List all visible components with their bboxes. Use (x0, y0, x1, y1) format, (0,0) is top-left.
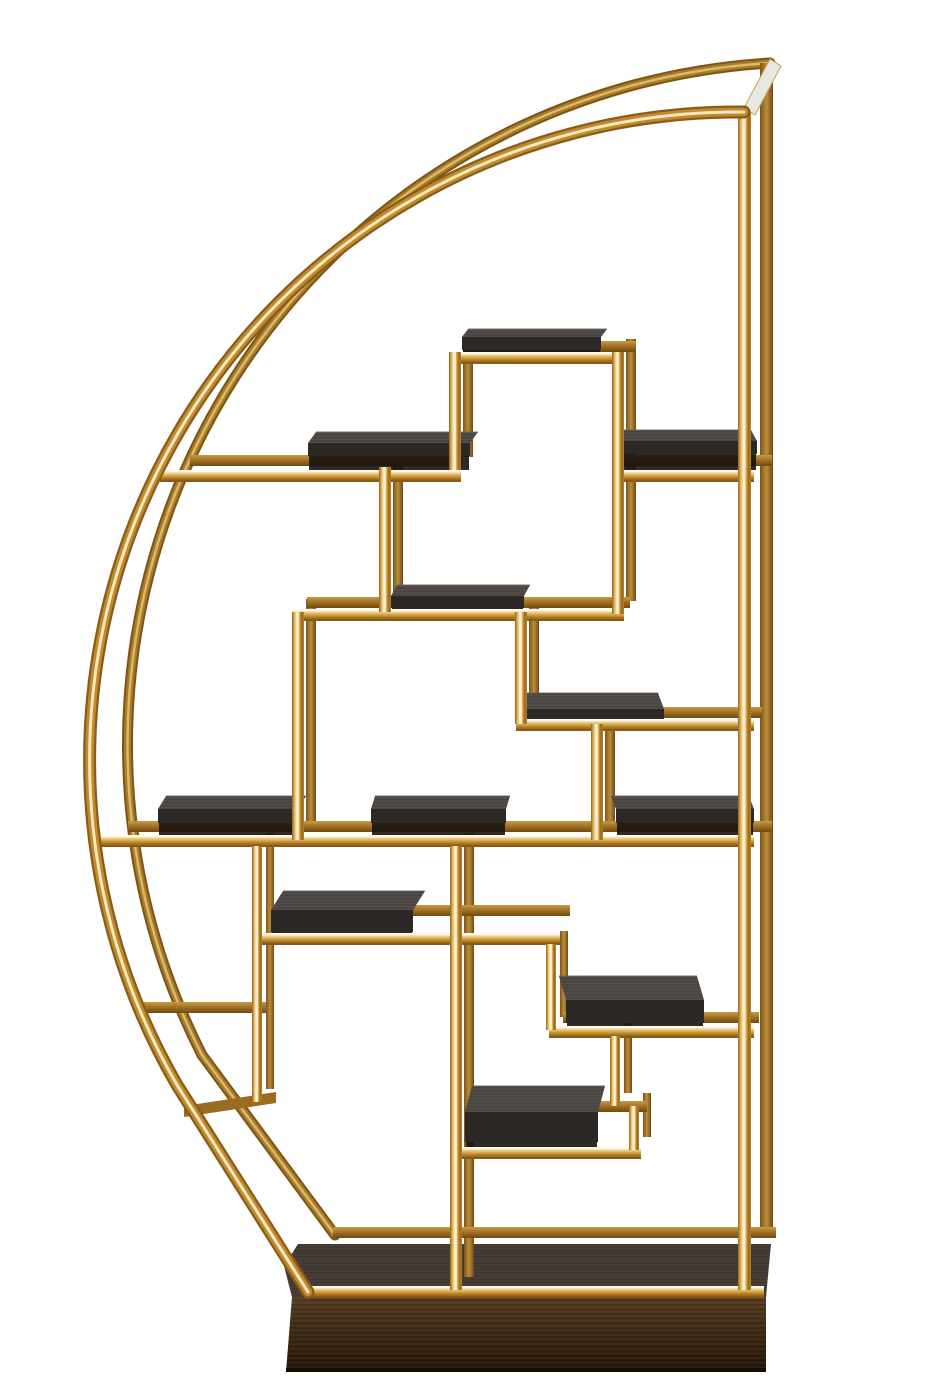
back-rail (597, 1101, 647, 1112)
shelf-front-face (465, 1112, 598, 1142)
shelf-front-face (526, 709, 664, 720)
etagere-illustration (0, 0, 933, 1400)
wood-plinth-base (284, 1244, 771, 1372)
back-right-post (760, 63, 773, 1234)
shelf-front-face (616, 809, 754, 823)
shelf-front-face (623, 441, 757, 454)
shelf-front-face (271, 910, 413, 932)
shelf-front-face (462, 337, 601, 350)
back-rail (333, 1227, 776, 1238)
shelf-front-face (308, 443, 470, 456)
shelf-front-face (391, 596, 524, 608)
shelf-front-face (158, 809, 298, 823)
back-rail (137, 1002, 266, 1013)
shelf-front-face (566, 1000, 704, 1023)
furniture-product-photo (0, 0, 933, 1400)
shelf-front-face (371, 809, 506, 823)
